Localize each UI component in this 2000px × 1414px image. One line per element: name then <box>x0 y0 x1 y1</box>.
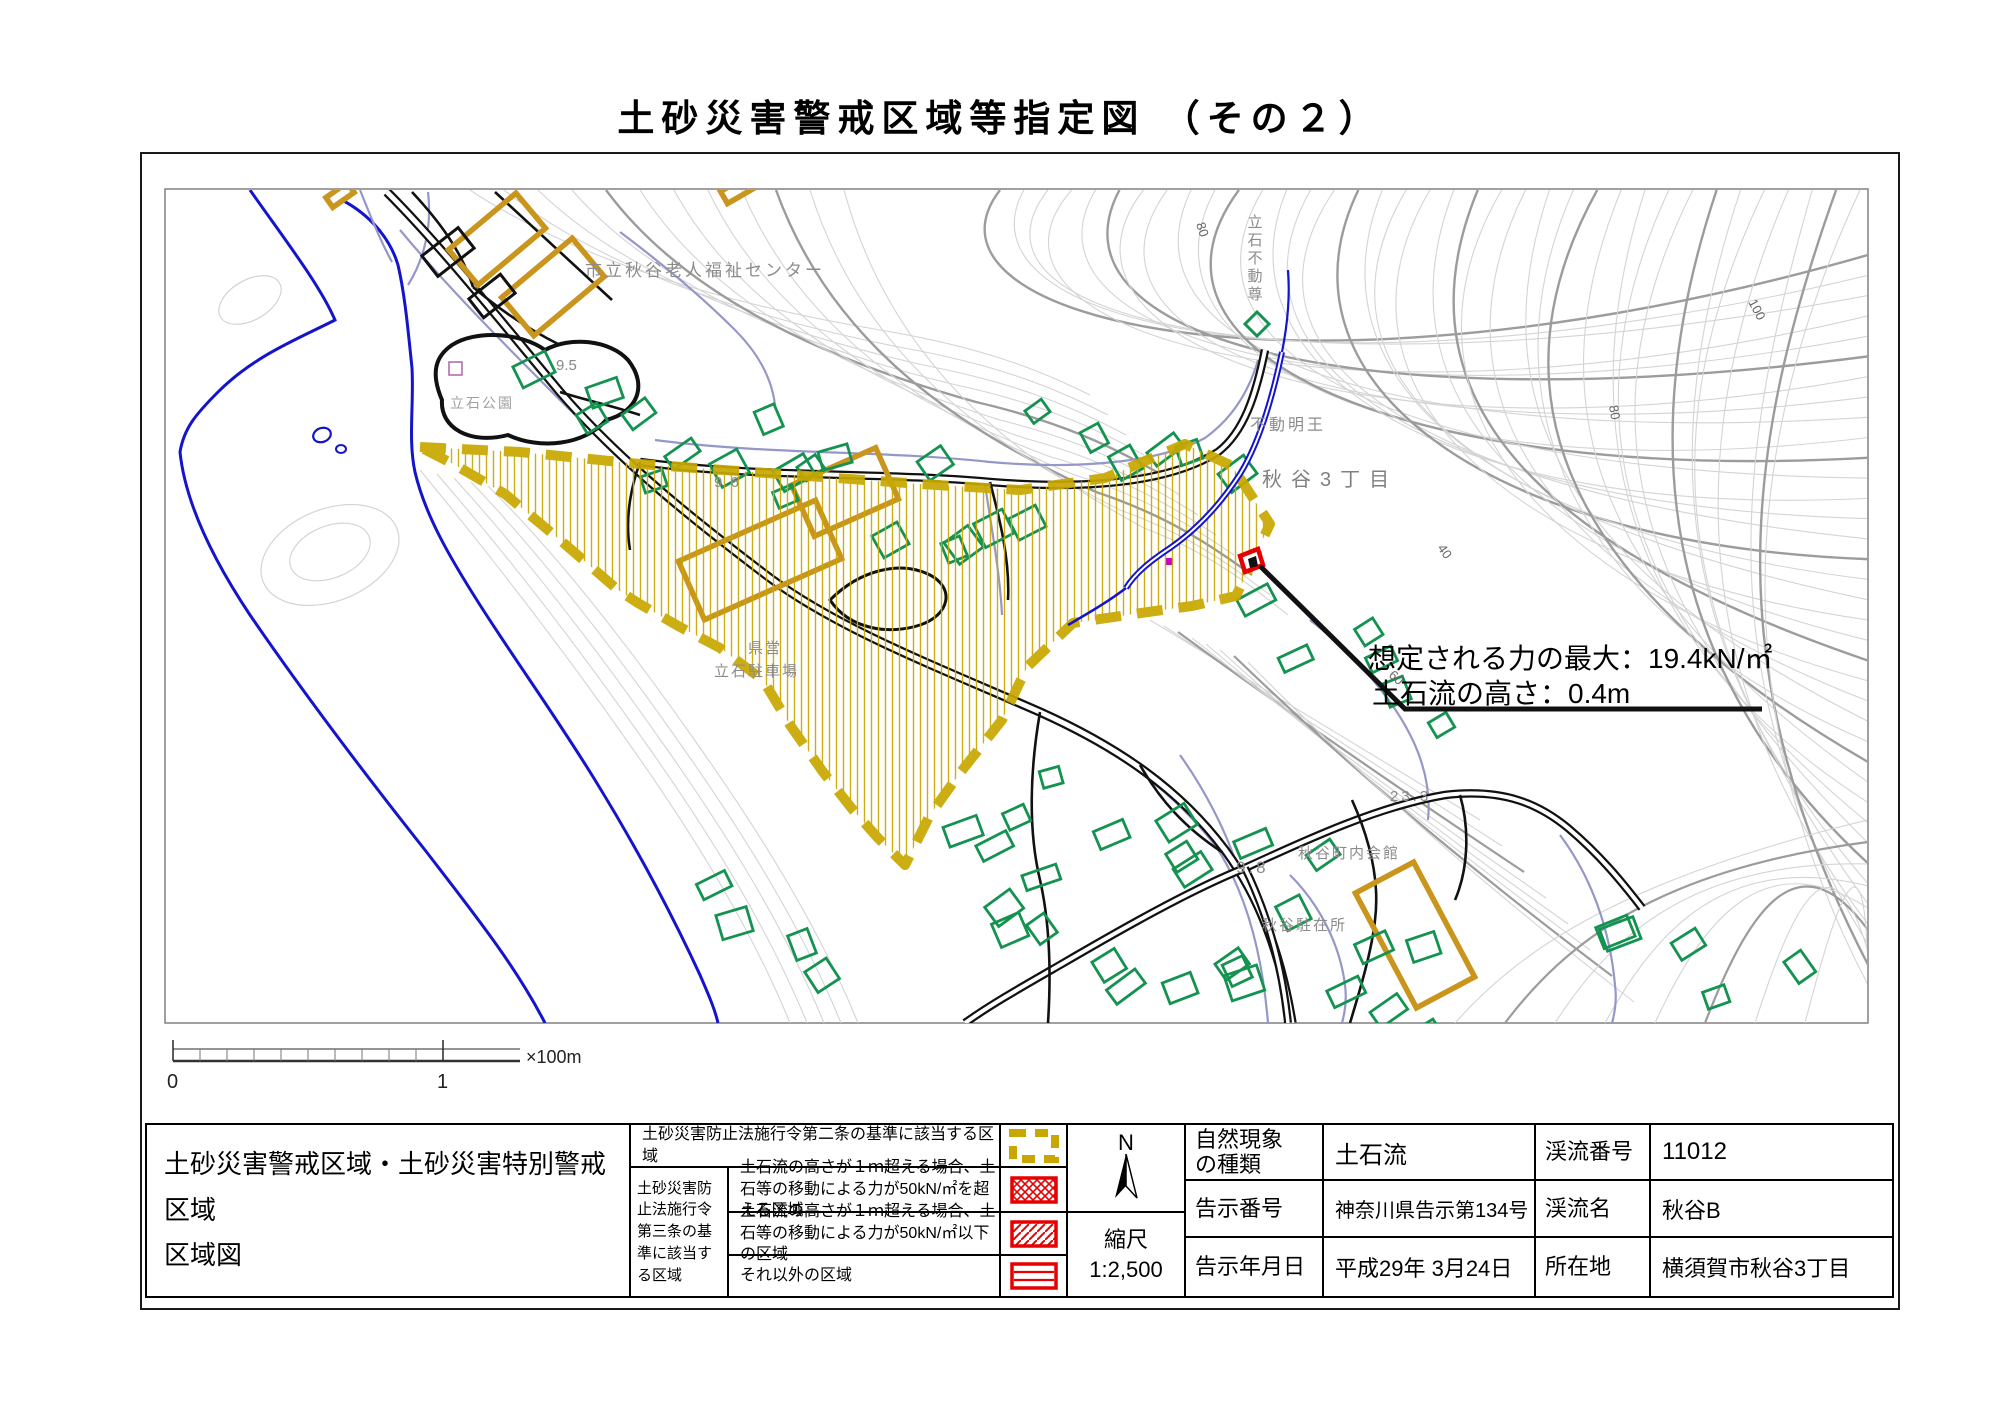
legend-and-info-table: 土砂災害警戒区域・土砂災害特別警戒区域 区域図 土砂災害防止法施行令第二条の基準… <box>146 1124 1893 1297</box>
red-horizontal-lines-swatch <box>1005 1258 1063 1294</box>
info-value-phenomenon: 土石流 <box>1323 1124 1535 1180</box>
legend-row4-swatch-cell <box>1000 1255 1067 1297</box>
red-diagonal-hatch-swatch <box>1005 1216 1063 1252</box>
legend-row4-text: それ以外の区域 <box>740 1265 1000 1287</box>
north-arrow-icon: N <box>1096 1130 1156 1206</box>
legend-row4-text-cell: それ以外の区域 <box>728 1255 1000 1297</box>
scale-value: 1:2,500 <box>1089 1255 1162 1285</box>
info-label-location: 所在地 <box>1535 1237 1650 1297</box>
scale-bar-graphic <box>173 1040 520 1061</box>
info-label-stream-number: 渓流番号 <box>1535 1124 1650 1180</box>
info-label-phenomenon: 自然現象 の種類 <box>1185 1124 1323 1180</box>
north-arrow-cell: N <box>1067 1124 1185 1212</box>
map-scale-cell: 縮尺 1:2,500 <box>1067 1212 1185 1297</box>
yellow-dashed-zone-swatch <box>1005 1128 1063 1164</box>
info-value-stream-name: 秋谷B <box>1650 1180 1893 1237</box>
info-value-location: 横須賀市秋谷3丁目 <box>1650 1237 1893 1297</box>
info-value-stream-number: 11012 <box>1650 1124 1893 1180</box>
north-letter: N <box>1118 1130 1134 1155</box>
red-crosshatch-swatch <box>1005 1172 1063 1208</box>
scale-tick-1: 1 <box>437 1071 448 1093</box>
info-label-notice-number: 告示番号 <box>1185 1180 1323 1237</box>
legend-row3-text-cell: 土石流の高さが１ｍ超える場合、土石等の移動による力が50kN/㎡以下の区域 <box>728 1212 1000 1255</box>
legend-row3-swatch-cell <box>1000 1212 1067 1255</box>
legend-group-label-cell: 土砂災害防止法施行令第三条の基準に該当する区域 <box>630 1167 728 1297</box>
scale-label: 縮尺 <box>1104 1225 1148 1255</box>
legend-row2-swatch-cell <box>1000 1167 1067 1212</box>
hazard-map-document: 土砂災害警戒区域等指定図 （その２） 想定される <box>0 0 2000 1414</box>
legend-row1-swatch-cell <box>1000 1124 1067 1167</box>
map-title-line2: 区域図 <box>164 1233 630 1279</box>
info-label-notice-date: 告示年月日 <box>1185 1237 1323 1297</box>
scale-tick-0: 0 <box>167 1071 178 1093</box>
map-title-cell: 土砂災害警戒区域・土砂災害特別警戒区域 区域図 <box>146 1124 630 1297</box>
info-value-notice-date: 平成29年 3月24日 <box>1323 1237 1535 1297</box>
info-value-notice-number: 神奈川県告示第134号 <box>1323 1180 1535 1237</box>
scale-unit: ×100m <box>526 1047 582 1067</box>
map-title-line1: 土砂災害警戒区域・土砂災害特別警戒区域 <box>164 1142 630 1233</box>
info-label-stream-name: 渓流名 <box>1535 1180 1650 1237</box>
legend-group-label: 土砂災害防止法施行令第三条の基準に該当する区域 <box>637 1178 724 1287</box>
